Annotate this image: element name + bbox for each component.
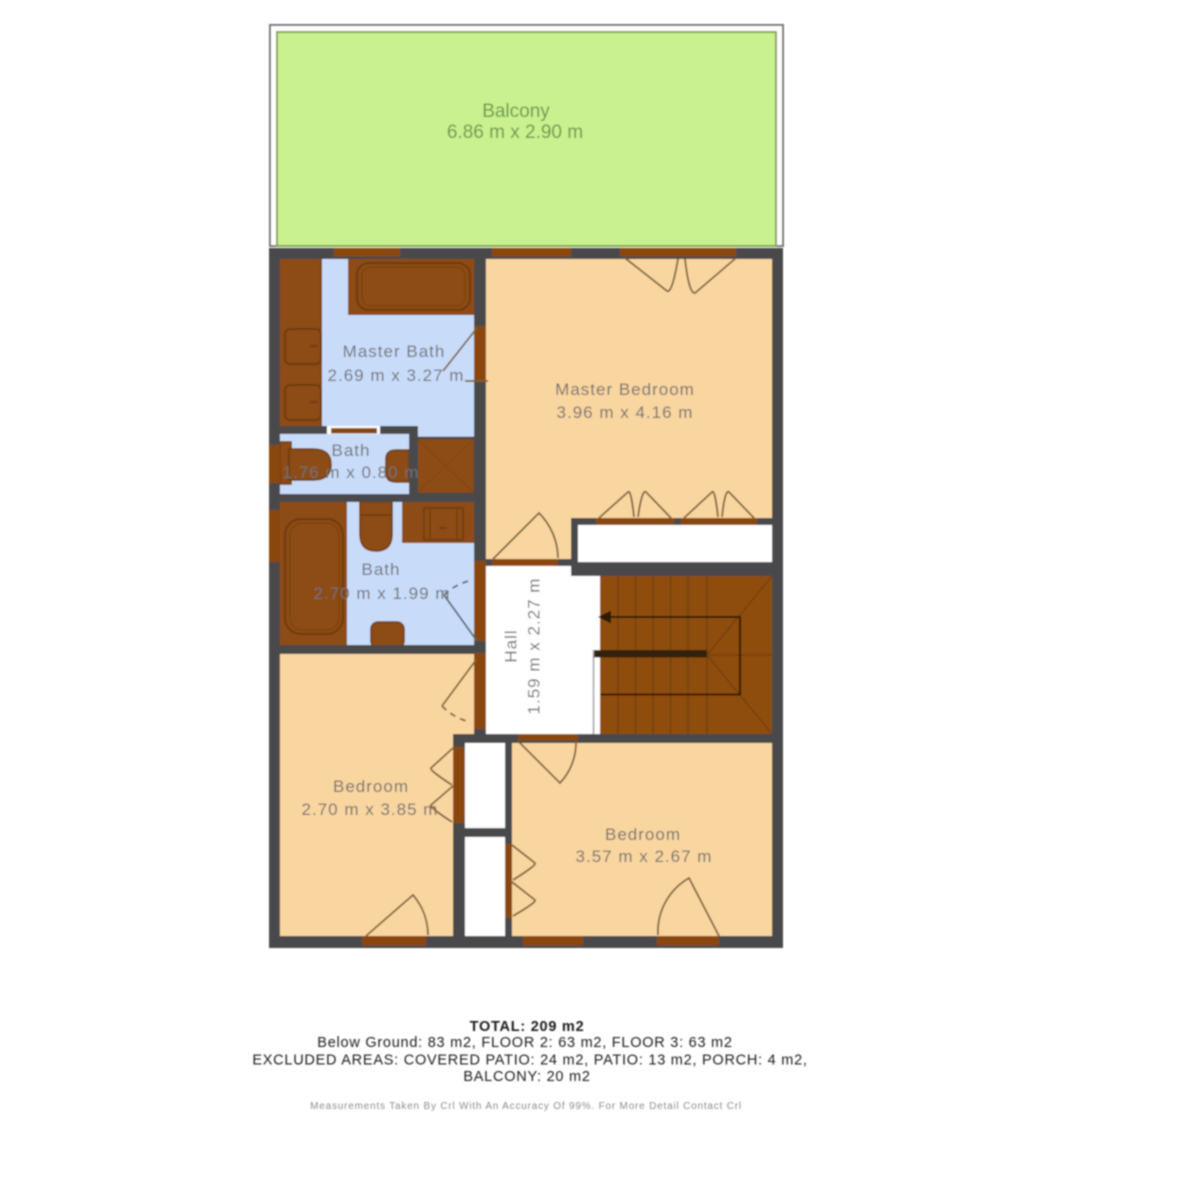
svg-text:BALCONY: 20 m2: BALCONY: 20 m2: [463, 1069, 590, 1085]
svg-text:3.57 m x 2.67 m: 3.57 m x 2.67 m: [576, 847, 713, 866]
svg-text:Bath: Bath: [362, 560, 401, 579]
svg-text:3.96 m x 4.16 m: 3.96 m x 4.16 m: [557, 403, 694, 422]
svg-text:TOTAL: 209 m2: TOTAL: 209 m2: [470, 1019, 585, 1035]
svg-text:Below Ground: 83 m2, FLOOR 2:: Below Ground: 83 m2, FLOOR 2: 63 m2, FLO…: [317, 1035, 732, 1051]
svg-text:Bedroom: Bedroom: [333, 777, 409, 796]
svg-text:2.69 m x 3.27 m: 2.69 m x 3.27 m: [328, 366, 465, 385]
svg-text:Bedroom: Bedroom: [605, 825, 681, 844]
svg-text:Balcony: Balcony: [482, 101, 550, 122]
svg-text:Master Bath: Master Bath: [343, 342, 446, 361]
svg-text:6.86 m x 2.90 m: 6.86 m x 2.90 m: [447, 122, 583, 143]
svg-text:1.59 m x 2.27 m: 1.59 m x 2.27 m: [524, 578, 543, 715]
svg-text:1.76 m x 0.80 m: 1.76 m x 0.80 m: [283, 463, 420, 482]
svg-text:Bath: Bath: [332, 441, 371, 460]
svg-text:2.70 m x 1.99 m: 2.70 m x 1.99 m: [314, 584, 451, 603]
svg-text:Measurements Taken By Crl With: Measurements Taken By Crl With An Accura…: [310, 1101, 742, 1112]
svg-text:Master Bedroom: Master Bedroom: [555, 380, 695, 399]
svg-text:2.70 m x 3.85 m: 2.70 m x 3.85 m: [302, 800, 439, 819]
svg-text:EXCLUDED AREAS: COVERED PATIO:: EXCLUDED AREAS: COVERED PATIO: 24 m2, PA…: [252, 1053, 807, 1069]
svg-text:Hall: Hall: [501, 629, 520, 662]
